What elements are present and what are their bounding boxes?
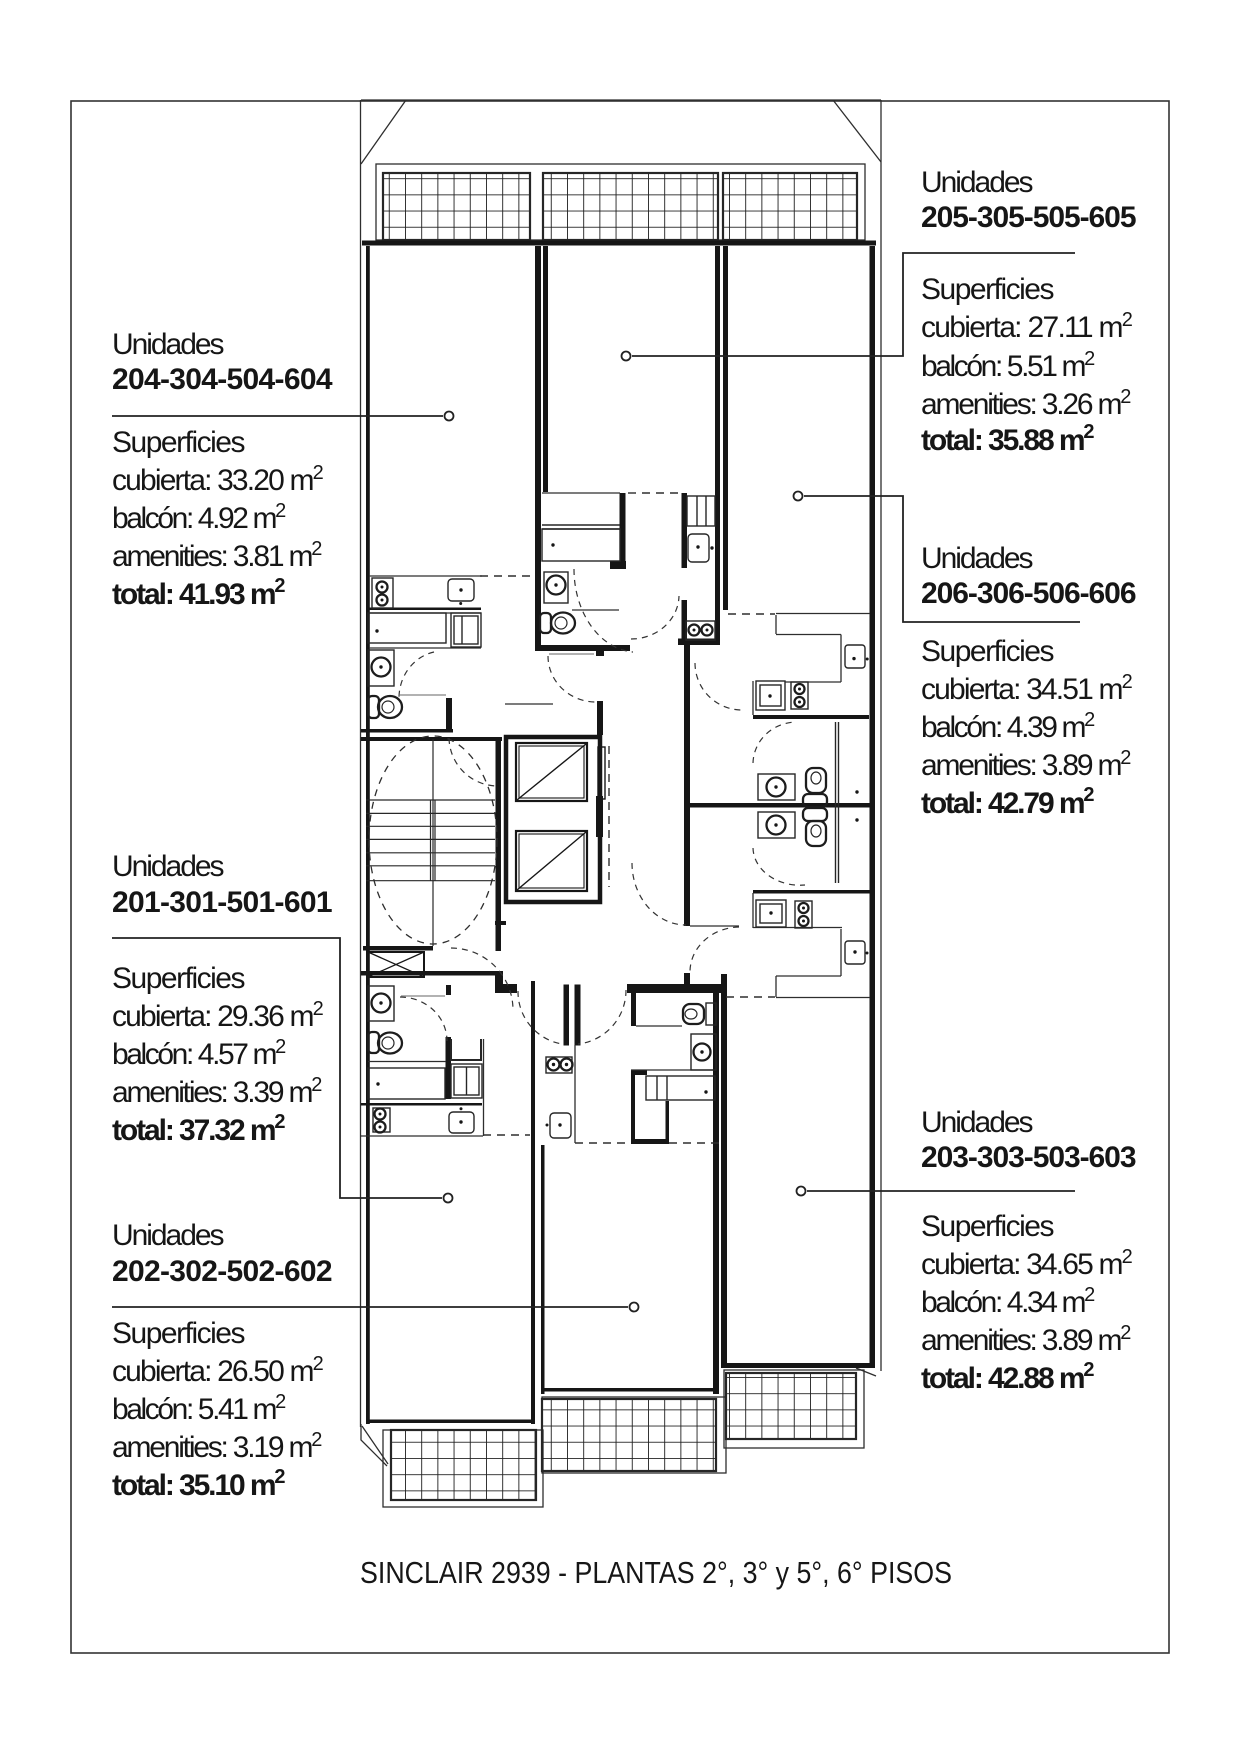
svg-text:Superficies: Superficies xyxy=(921,1210,1054,1243)
svg-text:203-303-503-603: 203-303-503-603 xyxy=(921,1141,1136,1174)
svg-text:cubierta: 27.11 m2: cubierta: 27.11 m2 xyxy=(921,309,1133,344)
svg-text:206-306-506-606: 206-306-506-606 xyxy=(921,577,1136,610)
svg-text:total: 42.88 m2: total: 42.88 m2 xyxy=(921,1359,1094,1395)
svg-text:cubierta: 26.50 m2: cubierta: 26.50 m2 xyxy=(112,1353,324,1388)
svg-text:Unidades: Unidades xyxy=(921,542,1033,575)
svg-text:Unidades: Unidades xyxy=(112,850,224,883)
svg-text:cubierta: 34.65 m2: cubierta: 34.65 m2 xyxy=(921,1246,1133,1281)
svg-text:SINCLAIR 2939 - PLANTAS 2°, 3°: SINCLAIR 2939 - PLANTAS 2°, 3° y 5°, 6° … xyxy=(360,1555,952,1590)
svg-text:total: 37.32 m2: total: 37.32 m2 xyxy=(112,1111,285,1147)
svg-text:amenities: 3.19 m2: amenities: 3.19 m2 xyxy=(112,1429,322,1464)
svg-text:205-305-505-605: 205-305-505-605 xyxy=(921,201,1136,234)
svg-text:amenities: 3.26 m2: amenities: 3.26 m2 xyxy=(921,386,1131,421)
svg-text:Unidades: Unidades xyxy=(112,328,224,361)
svg-text:total: 35.10 m2: total: 35.10 m2 xyxy=(112,1466,285,1502)
svg-text:Unidades: Unidades xyxy=(921,166,1033,199)
svg-text:amenities: 3.81 m2: amenities: 3.81 m2 xyxy=(112,538,322,573)
svg-text:balcón: 4.57 m2: balcón: 4.57 m2 xyxy=(112,1036,286,1071)
svg-text:total: 35.88 m2: total: 35.88 m2 xyxy=(921,421,1094,457)
svg-text:cubierta: 34.51 m2: cubierta: 34.51 m2 xyxy=(921,671,1133,706)
svg-text:total: 41.93 m2: total: 41.93 m2 xyxy=(112,575,285,611)
svg-text:amenities: 3.89 m2: amenities: 3.89 m2 xyxy=(921,747,1131,782)
svg-text:Superficies: Superficies xyxy=(112,962,245,995)
svg-text:balcón: 4.39 m2: balcón: 4.39 m2 xyxy=(921,709,1095,744)
svg-text:cubierta: 33.20 m2: cubierta: 33.20 m2 xyxy=(112,462,324,497)
svg-text:balcón: 4.92 m2: balcón: 4.92 m2 xyxy=(112,500,286,535)
svg-text:Superficies: Superficies xyxy=(112,426,245,459)
svg-text:balcón: 5.51 m2: balcón: 5.51 m2 xyxy=(921,348,1095,383)
svg-text:amenities: 3.39 m2: amenities: 3.39 m2 xyxy=(112,1074,322,1109)
svg-text:Superficies: Superficies xyxy=(921,635,1054,668)
svg-text:cubierta: 29.36 m2: cubierta: 29.36 m2 xyxy=(112,998,324,1033)
svg-text:Superficies: Superficies xyxy=(921,273,1054,306)
svg-text:balcón: 4.34 m2: balcón: 4.34 m2 xyxy=(921,1284,1095,1319)
svg-text:201-301-501-601: 201-301-501-601 xyxy=(112,886,332,919)
svg-text:202-302-502-602: 202-302-502-602 xyxy=(112,1255,332,1288)
svg-text:total: 42.79 m2: total: 42.79 m2 xyxy=(921,784,1094,820)
svg-text:Unidades: Unidades xyxy=(921,1106,1033,1139)
svg-text:204-304-504-604: 204-304-504-604 xyxy=(112,363,333,396)
svg-text:Unidades: Unidades xyxy=(112,1219,224,1252)
svg-text:balcón: 5.41 m2: balcón: 5.41 m2 xyxy=(112,1391,286,1426)
svg-text:Superficies: Superficies xyxy=(112,1317,245,1350)
svg-text:amenities: 3.89 m2: amenities: 3.89 m2 xyxy=(921,1322,1131,1357)
